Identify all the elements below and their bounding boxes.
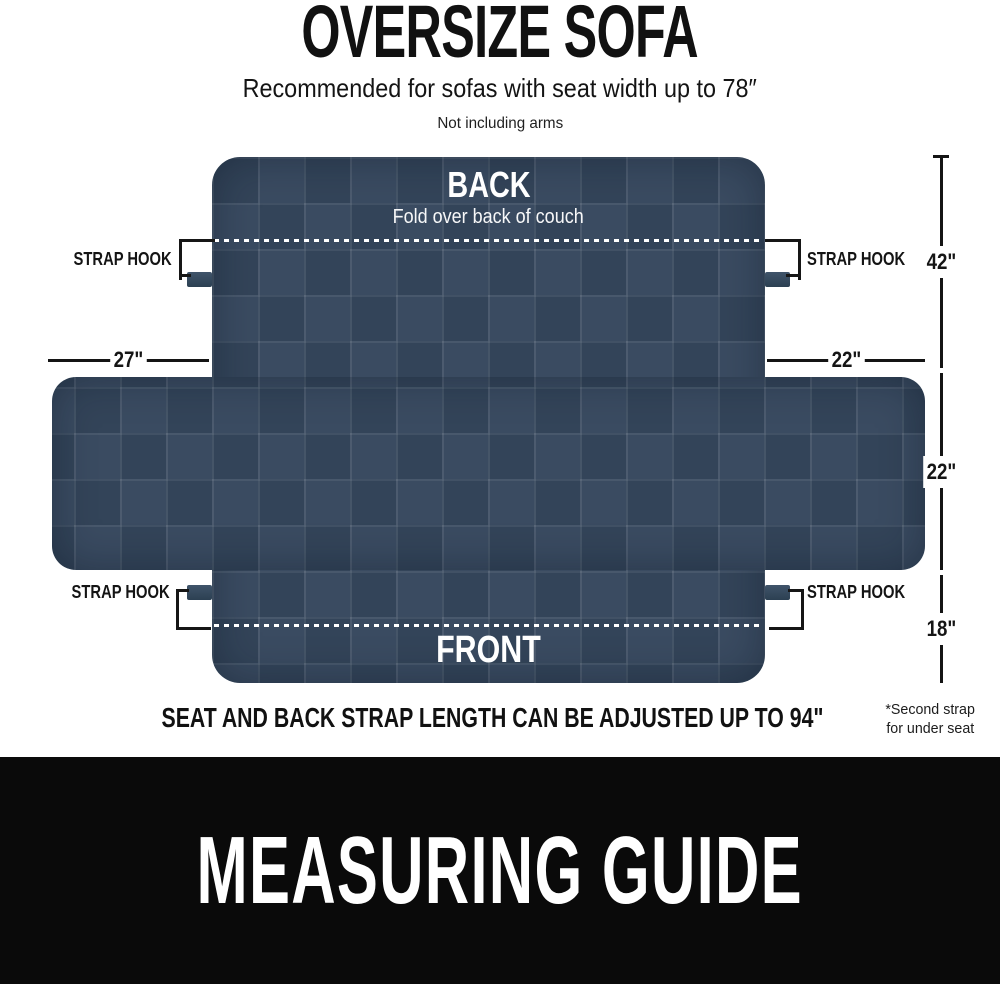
measure-right-flap-width: 22" (767, 347, 925, 373)
measure-left-flap-width: 27" (48, 347, 209, 373)
strap-hook-bracket-top-left-stub (179, 274, 191, 277)
strap-hook-bracket-bottom-left-stub (176, 589, 189, 592)
back-section-label: BACK (212, 165, 765, 205)
measure-value: 27" (110, 344, 146, 376)
front-section-label: FRONT (212, 629, 765, 671)
arms-note: Not including arms (0, 114, 1000, 134)
measure-value: 22" (828, 344, 864, 376)
measure-value: 18" (923, 613, 959, 645)
measuring-guide-page: OVERSIZE SOFA Recommended for sofas with… (0, 0, 1000, 984)
strap-hook-label-bottom-right: STRAP HOOK (807, 583, 947, 602)
measure-value: 42" (923, 246, 959, 278)
measuring-guide-banner: MEASURING GUIDE (0, 757, 1000, 984)
strap-hook-bracket-bottom-right-stub (788, 589, 801, 592)
strap-hook-bracket-top-right-stub (786, 274, 798, 277)
sofa-cover-arm-flaps-panel (52, 377, 925, 570)
measure-middle-section-height: 22" (928, 373, 954, 570)
page-title: OVERSIZE SOFA (0, 0, 1000, 69)
second-strap-note: *Second strap for under seat (870, 700, 990, 738)
back-fold-note: Fold over back of couch (212, 204, 765, 230)
measure-value: 22" (923, 456, 959, 488)
strap-hook-label-top-left: STRAP HOOK (52, 250, 172, 269)
measure-back-section-height: 42" (928, 156, 954, 368)
strap-hook-label-bottom-left: STRAP HOOK (50, 583, 170, 602)
strap-adjust-note: SEAT AND BACK STRAP LENGTH CAN BE ADJUST… (0, 701, 985, 735)
second-strap-note-line2: for under seat (870, 719, 990, 738)
second-strap-note-line1: *Second strap (870, 700, 990, 719)
measure-front-section-height: 18" (928, 575, 954, 683)
page-subtitle: Recommended for sofas with seat width up… (0, 72, 1000, 104)
front-fold-dashed-line (214, 624, 763, 627)
back-fold-dashed-line (214, 239, 763, 242)
strap-hook-bracket-bottom-right (769, 589, 804, 630)
strap-hook-bracket-bottom-left (176, 589, 211, 630)
measuring-guide-title: MEASURING GUIDE (26, 816, 973, 926)
